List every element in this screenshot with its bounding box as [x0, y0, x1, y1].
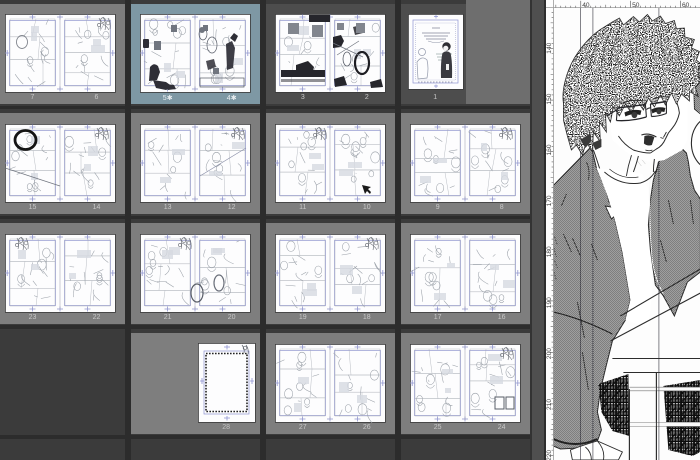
svg-text:140: 140 — [546, 42, 553, 53]
svg-text:160: 160 — [546, 144, 553, 155]
svg-text:40: 40 — [582, 2, 590, 9]
svg-text:220: 220 — [546, 450, 553, 460]
svg-text:200: 200 — [546, 348, 553, 359]
svg-text:170: 170 — [546, 195, 553, 206]
svg-text:190: 190 — [546, 297, 553, 308]
svg-text:60: 60 — [682, 2, 690, 9]
svg-text:150: 150 — [546, 93, 553, 104]
svg-text:180: 180 — [546, 246, 553, 257]
svg-text:210: 210 — [546, 399, 553, 410]
svg-text:50: 50 — [632, 2, 640, 9]
